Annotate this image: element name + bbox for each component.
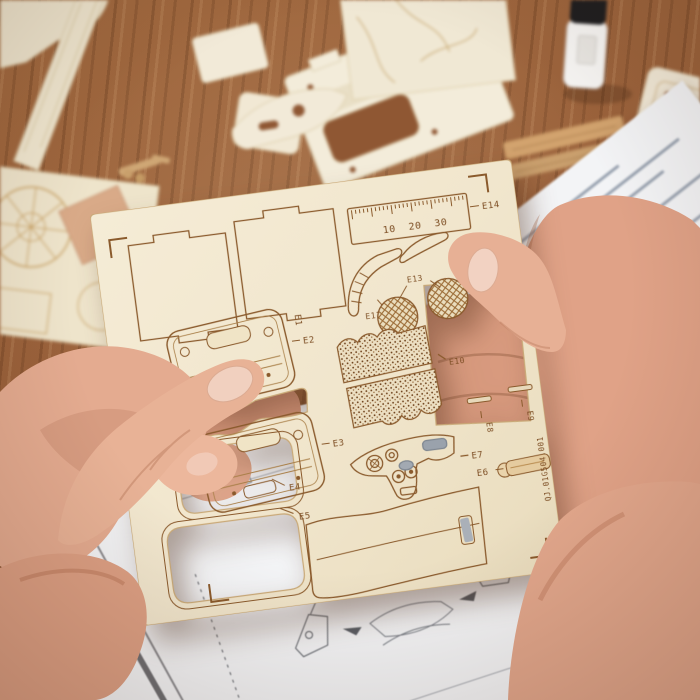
left-wrist	[0, 553, 147, 700]
right-thumb	[448, 232, 566, 352]
scene: E1 10 20 30 E14 E11 E13 E2	[0, 0, 700, 700]
hands-front	[0, 0, 700, 700]
right-wrist	[508, 481, 700, 700]
